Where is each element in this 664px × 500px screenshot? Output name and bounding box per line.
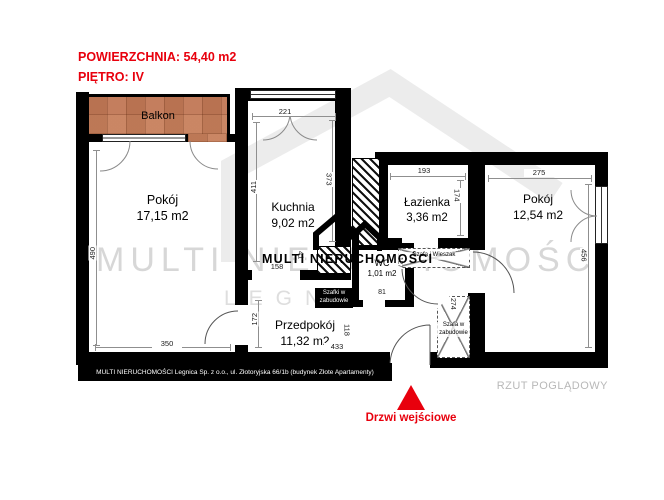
wall-rightroom-left-upper <box>468 152 485 250</box>
dimline-rightroom-v <box>588 184 589 348</box>
wc-area: 1,01 m2 <box>359 269 405 280</box>
floor-header-text: PIĘTRO: IV <box>78 70 144 84</box>
balcony-door-arc <box>190 141 218 169</box>
footer-address-text: MULTI NIERUCHOMOŚCI Legnica Sp. z o.o., … <box>96 369 374 376</box>
dim-kitchen-width: 221 <box>270 108 300 116</box>
room-left-area: 17,15 m2 <box>110 208 215 224</box>
brand-logo: MULTI NIERUCHOMOŚCI <box>262 210 432 266</box>
kitchen-casement-arc-left <box>263 113 290 140</box>
dim-hallway-height-right: 118 <box>343 323 351 337</box>
entrance-door-label: Drzwi wejściowe <box>346 412 476 424</box>
footer-address-bar: MULTI NIERUCHOMOŚCI Legnica Sp. z o.o., … <box>78 363 392 381</box>
dim-leftroom-height: 490 <box>89 246 97 261</box>
brand-roof-left <box>316 217 356 250</box>
dimline-bathroom-h <box>390 176 466 177</box>
kitchen-casement-arc-right <box>290 113 317 140</box>
room-left-label: Pokój 17,15 m2 <box>110 192 215 225</box>
entrance-door-arc <box>390 325 430 365</box>
wall-right-outer-lower <box>595 244 608 368</box>
wc-door-opening <box>363 300 385 307</box>
leftroom-casement-arc <box>100 141 130 171</box>
floor-plan-page: POWIERZCHNIA: 54,40 m2 PIĘTRO: IV MULTI … <box>0 0 664 500</box>
leftroom-door-arc <box>205 311 238 344</box>
dimline-rightroom-h <box>488 178 592 179</box>
wall-rightroom-left-lower <box>468 293 485 352</box>
brand-logo-text: MULTI NIERUCHOMOŚCI <box>262 252 432 266</box>
window-leftroom <box>102 134 186 142</box>
room-left-name: Pokój <box>110 192 215 208</box>
balcony-door-threshold <box>188 134 227 142</box>
dim-kitchen-height-right: 373 <box>325 172 333 187</box>
wall-kitchen-bottom-left <box>235 270 252 280</box>
view-type-label: RZUT POGLĄDOWY <box>458 380 608 392</box>
balcony-label: Balkon <box>118 109 198 123</box>
room-right-name: Pokój <box>488 192 588 208</box>
window-kitchen <box>250 90 336 99</box>
dim-bathroom-width: 193 <box>410 167 438 175</box>
wall-leftroom-door-jamb <box>235 345 248 352</box>
area-header-text: POWIERZCHNIA: 54,40 m2 <box>78 50 236 64</box>
dim-kitchen-height-left: 411 <box>250 180 258 194</box>
built-in-wardrobe-label: Szafa w zabudowie <box>437 322 470 337</box>
wall-balcony-top <box>86 94 230 97</box>
entrance-arrow-icon <box>397 385 425 410</box>
dim-hallway-width: 433 <box>324 343 350 351</box>
dim-bathroom-height: 174 <box>453 188 461 203</box>
dim-wardrobe-height: 274 <box>449 297 456 311</box>
wall-top-right-section <box>375 152 608 165</box>
wall-balcony-right <box>227 95 230 136</box>
dim-rightroom-width: 275 <box>524 169 554 177</box>
built-in-cabinets-label: Szafki w zabudowie <box>315 288 353 308</box>
dimline-kitchen-h <box>252 116 336 117</box>
dim-leftroom-width: 350 <box>152 340 182 348</box>
wall-left-outer <box>76 92 89 365</box>
dim-hallway-height-left: 172 <box>251 312 259 327</box>
window-rightroom <box>595 186 608 244</box>
room-right-label: Pokój 12,54 m2 <box>488 192 588 223</box>
dim-wc-width: 81 <box>373 289 391 296</box>
brand-roof-logo-icon <box>312 210 382 252</box>
wall-right-outer-upper <box>595 152 608 186</box>
room-right-area: 12,54 m2 <box>488 208 588 224</box>
dim-rightroom-height: 456 <box>580 248 588 263</box>
